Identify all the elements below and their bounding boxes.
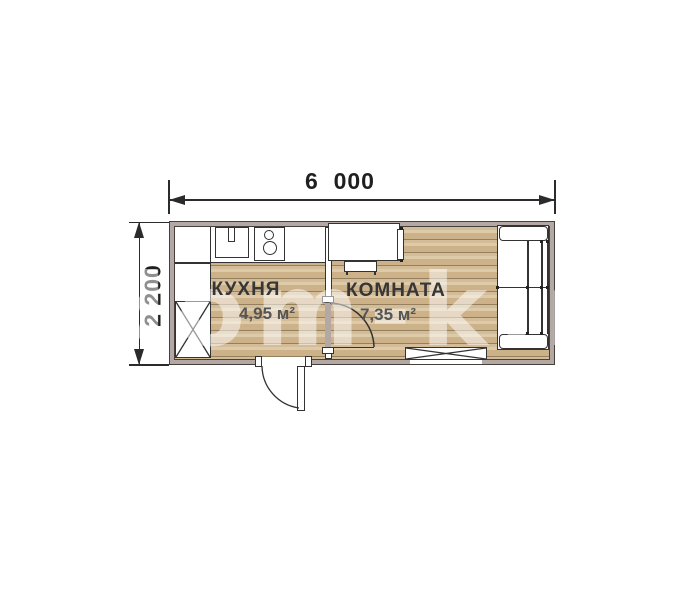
arrow-right-icon [539,195,555,205]
sofa-dot [526,286,529,289]
arrow-down-icon [134,349,144,365]
sofa-dot [540,286,543,289]
stool [344,261,377,272]
wardrobe-cross-icon [175,301,211,358]
table [328,223,400,261]
burner-small-icon [264,230,274,240]
room-area-label: 7,35 м² [340,305,436,325]
burner-large-icon [263,241,277,255]
sofa-dot [526,332,529,335]
floor-plan-canvas: 6 000 2 200 [0,0,690,610]
stool-leg-right [374,272,376,275]
dimension-width-line [169,199,555,201]
kitchen-label: КУХНЯ [198,279,294,301]
faucet-icon [228,227,235,242]
sofa-dot [496,286,499,289]
dimension-width-label: 6 000 [305,168,375,195]
chair-dot-bottom [400,259,403,262]
dimension-height-label: 2 200 [140,236,167,356]
arrow-left-icon [169,195,185,205]
entrance-jamb-right [305,356,312,367]
room-label: КОМНАТА [346,280,442,302]
interior-door-leaf [329,347,374,349]
entrance-door-arc-icon [258,364,304,412]
sofa-armrest-top [499,226,548,241]
tall-cabinet-shelf-line [175,262,211,264]
kitchen-area-label: 4,95 м² [219,304,315,324]
sofa-dot [540,240,543,243]
sofa-armrest-bottom [499,334,548,349]
sofa-dot [546,286,549,289]
arrow-up-icon [134,222,144,238]
chair [397,229,404,260]
sofa-dot [546,240,549,243]
bench-cross-icon [405,347,487,360]
dimension-height-line [139,222,141,365]
stool-leg-left [346,272,348,275]
chair-dot-top [400,227,403,230]
sofa-dot [540,332,543,335]
